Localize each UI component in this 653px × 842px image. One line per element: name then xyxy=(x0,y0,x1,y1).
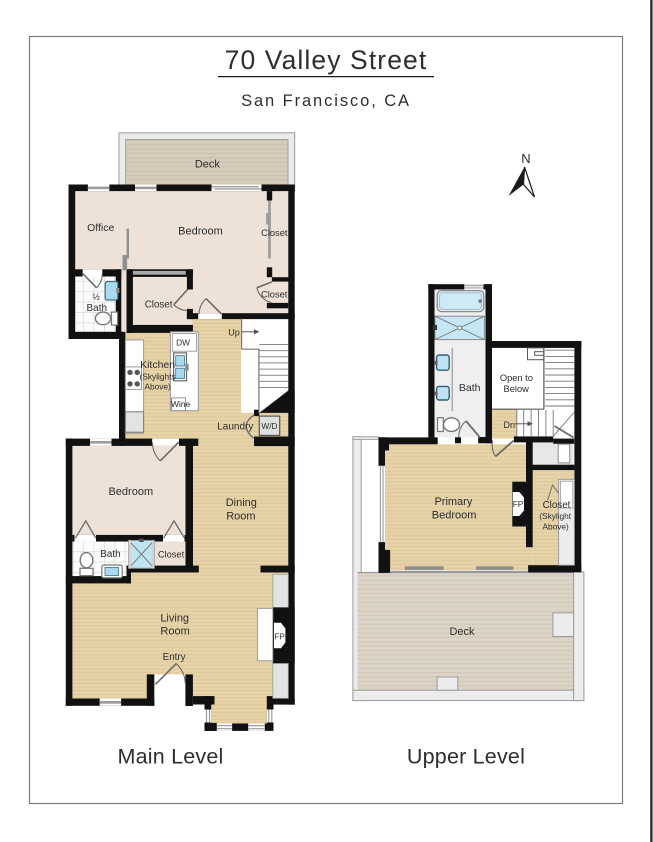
svg-text:Upper Level: Upper Level xyxy=(407,745,525,769)
svg-text:Kitchen: Kitchen xyxy=(140,359,175,371)
svg-text:Room: Room xyxy=(160,626,189,638)
svg-text:Bedroom: Bedroom xyxy=(432,510,477,522)
svg-text:Bedroom: Bedroom xyxy=(178,226,223,238)
svg-text:Bedroom: Bedroom xyxy=(108,486,153,498)
svg-text:Closet: Closet xyxy=(261,290,288,300)
svg-text:Bath: Bath xyxy=(459,382,481,394)
svg-text:FP: FP xyxy=(274,631,285,641)
svg-text:Closet: Closet xyxy=(158,550,185,560)
svg-text:DW: DW xyxy=(176,338,190,348)
svg-text:FP: FP xyxy=(513,499,524,509)
svg-text:Bath: Bath xyxy=(100,549,121,560)
svg-text:Below: Below xyxy=(504,384,530,394)
svg-text:70 Valley Street: 70 Valley Street xyxy=(225,45,428,75)
svg-text:Up: Up xyxy=(228,328,240,338)
svg-text:(Skylight: (Skylight xyxy=(539,511,572,521)
svg-text:Closet: Closet xyxy=(543,500,571,511)
svg-text:Laundry: Laundry xyxy=(217,422,253,433)
svg-text:Above): Above) xyxy=(144,382,171,392)
svg-text:Open to: Open to xyxy=(500,373,533,383)
svg-text:W/D: W/D xyxy=(261,421,277,431)
svg-text:Above): Above) xyxy=(542,522,569,532)
svg-text:Closet: Closet xyxy=(261,228,288,238)
svg-text:Living: Living xyxy=(160,613,189,625)
svg-text:Dining: Dining xyxy=(226,497,257,509)
svg-text:Wine: Wine xyxy=(171,399,191,409)
svg-text:½: ½ xyxy=(93,292,101,302)
svg-text:San Francisco, CA: San Francisco, CA xyxy=(241,92,411,110)
svg-text:Bath: Bath xyxy=(87,303,108,314)
svg-text:Dn: Dn xyxy=(504,420,516,430)
svg-text:Entry: Entry xyxy=(163,652,186,663)
svg-text:(Skylights: (Skylights xyxy=(140,372,176,382)
svg-text:Primary: Primary xyxy=(434,496,472,508)
svg-text:Deck: Deck xyxy=(195,159,221,171)
svg-text:Main Level: Main Level xyxy=(118,745,224,769)
svg-text:Deck: Deck xyxy=(449,626,475,638)
svg-text:N: N xyxy=(521,151,530,166)
svg-text:Room: Room xyxy=(226,510,255,522)
svg-text:Office: Office xyxy=(87,222,114,234)
svg-text:Closet: Closet xyxy=(145,300,173,311)
